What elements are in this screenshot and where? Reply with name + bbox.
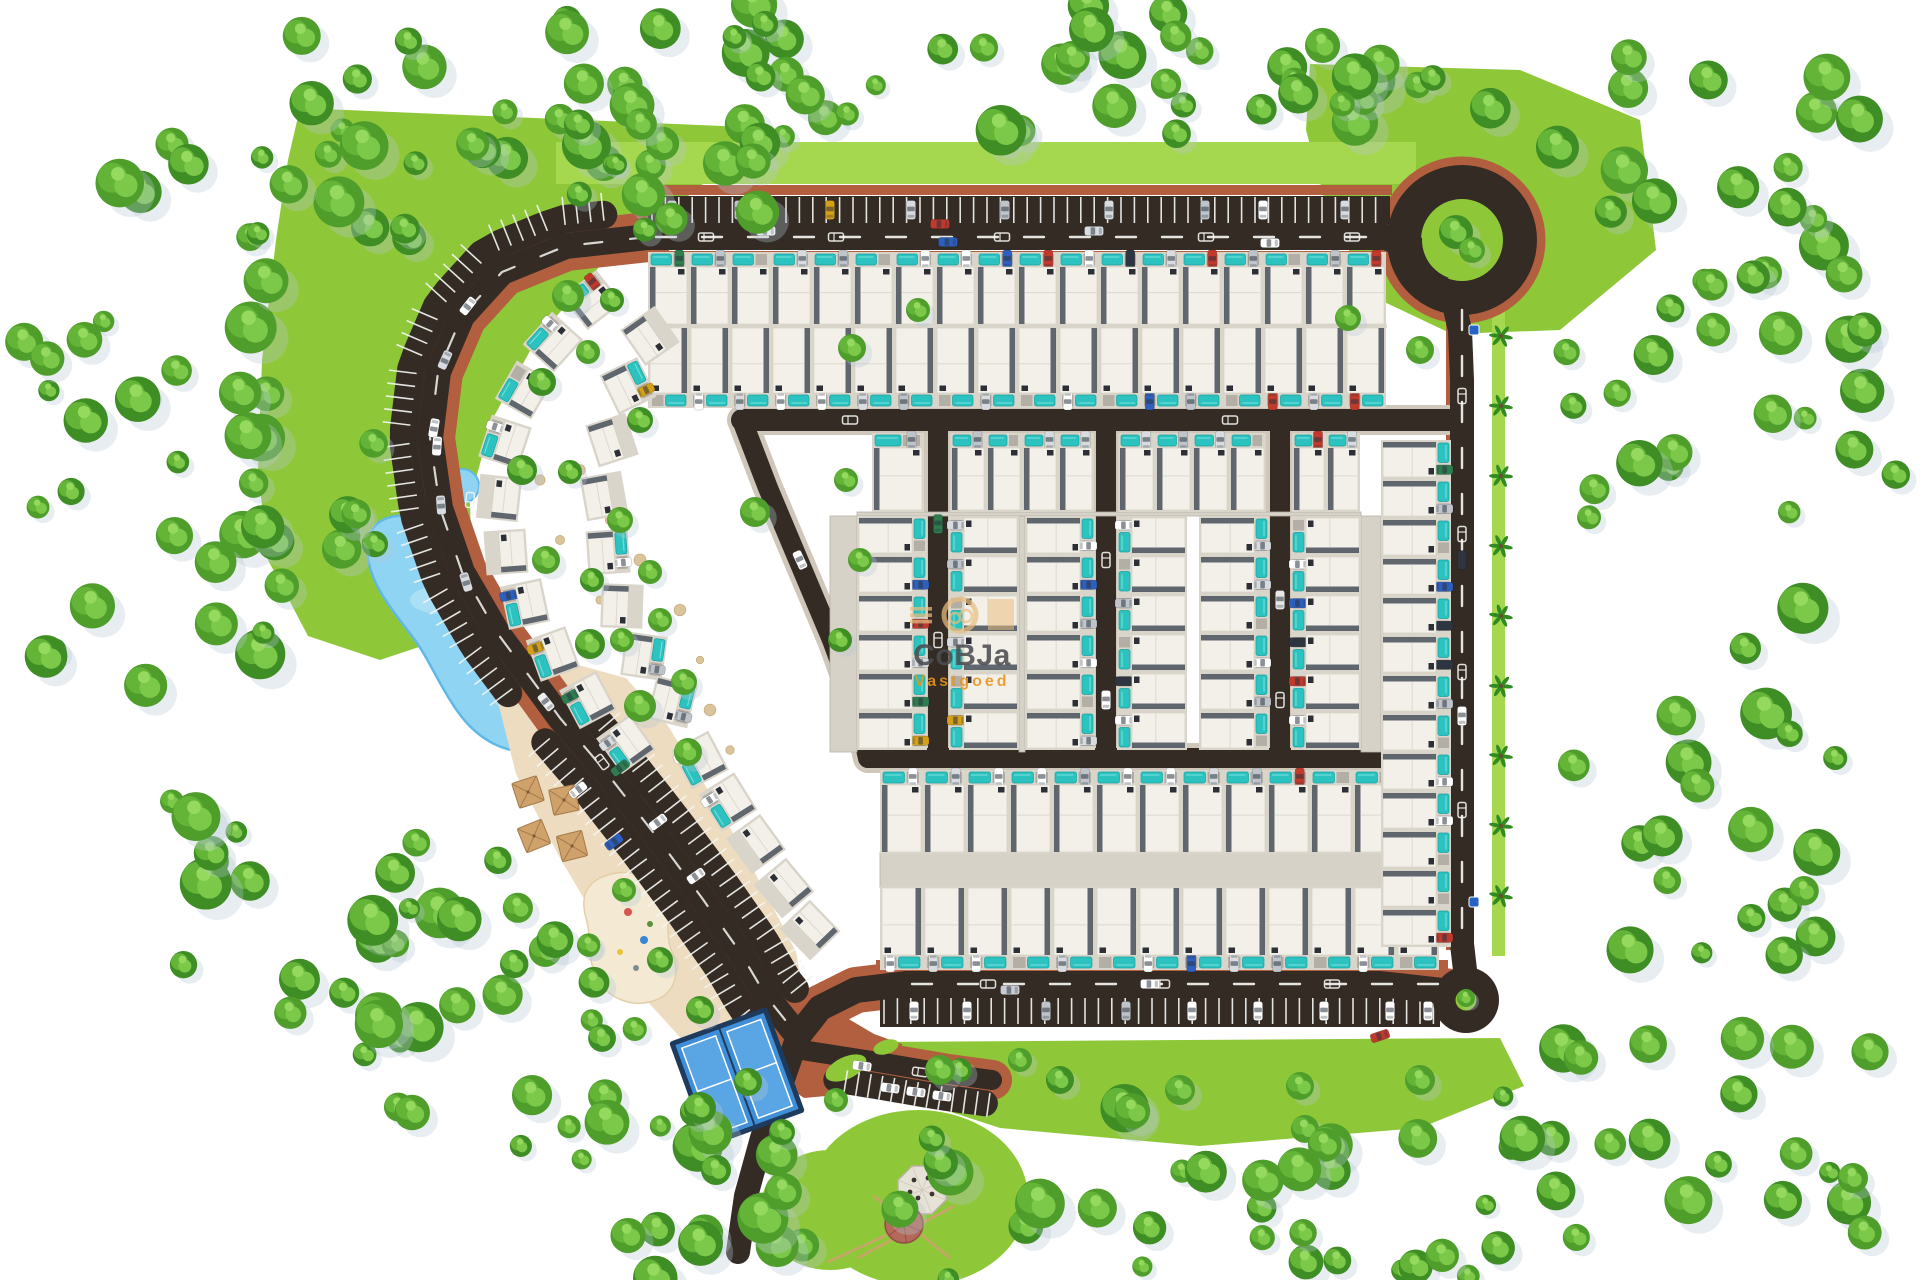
car [1434, 777, 1453, 786]
car [1115, 716, 1134, 725]
car [1457, 707, 1466, 726]
car [1166, 768, 1175, 787]
car [1144, 953, 1153, 972]
house-unit [1025, 516, 1097, 555]
car [1350, 391, 1359, 410]
car [947, 716, 966, 725]
tree [1493, 1086, 1518, 1110]
house-unit [1267, 768, 1310, 854]
house-unit [1181, 886, 1224, 972]
tree [1696, 313, 1737, 353]
tree [512, 1075, 561, 1123]
car [1434, 660, 1453, 669]
car [1200, 201, 1209, 220]
house-unit [935, 326, 976, 408]
tree [1696, 269, 1735, 307]
car [817, 391, 826, 410]
parking-sign [1469, 897, 1479, 907]
tree [1848, 1216, 1889, 1257]
house-unit [1222, 326, 1263, 408]
house-unit [689, 250, 730, 326]
car [1230, 953, 1239, 972]
car [798, 250, 807, 269]
car [1295, 768, 1304, 787]
car [931, 219, 950, 228]
tree [1132, 1256, 1157, 1280]
house-unit [1289, 555, 1361, 594]
car [947, 521, 966, 530]
car [1434, 504, 1453, 513]
house-unit [949, 594, 1019, 633]
car [1347, 431, 1356, 450]
house-unit [1381, 713, 1451, 752]
car [933, 515, 942, 534]
house-unit [857, 594, 929, 633]
tree [1836, 96, 1893, 152]
car [951, 768, 960, 787]
car [972, 953, 981, 972]
house-unit [1291, 516, 1361, 555]
house-unit [976, 250, 1017, 326]
car [947, 638, 966, 647]
house-unit [1117, 633, 1187, 672]
car [1434, 816, 1453, 825]
car [1078, 658, 1097, 667]
house-unit [1381, 908, 1453, 947]
house-unit [1058, 250, 1099, 326]
house-unit [1025, 633, 1097, 672]
house-unit [853, 252, 894, 326]
shrub [674, 604, 686, 616]
car [1104, 201, 1113, 220]
car [1003, 250, 1012, 269]
tree [1656, 294, 1690, 328]
car [1252, 768, 1261, 787]
house-unit [1199, 711, 1269, 750]
car [1252, 697, 1271, 706]
house-unit [1022, 431, 1058, 512]
play-equipment [617, 949, 623, 955]
back-alley [1019, 516, 1025, 752]
car [1001, 985, 1020, 994]
house-unit [1115, 516, 1187, 555]
tree [532, 546, 566, 580]
house-unit [1289, 633, 1361, 672]
car [1289, 677, 1308, 686]
car [899, 391, 908, 410]
car [1080, 768, 1089, 787]
car [1261, 238, 1280, 247]
house-unit [1310, 886, 1353, 970]
house-unit [1345, 326, 1386, 410]
car [675, 250, 684, 269]
house-unit [1381, 518, 1451, 557]
tree [1774, 153, 1810, 188]
car [981, 391, 990, 410]
tree [1289, 1219, 1323, 1252]
tree [395, 27, 428, 60]
tree [545, 10, 599, 63]
house-unit [1138, 768, 1181, 854]
car [1423, 1002, 1432, 1021]
car [839, 250, 848, 269]
car [1115, 521, 1134, 530]
tree [1629, 1119, 1680, 1169]
house-unit [1138, 886, 1181, 972]
car [1078, 580, 1097, 589]
house-unit [1025, 711, 1097, 750]
car [1044, 250, 1053, 269]
house-unit [872, 431, 924, 512]
car [1319, 1002, 1328, 1021]
tree [1481, 1231, 1522, 1271]
house-unit [1181, 250, 1222, 326]
tree [283, 17, 330, 63]
tree [1664, 1176, 1723, 1234]
house-unit [1292, 431, 1326, 512]
car [1186, 391, 1195, 410]
car [1141, 979, 1160, 988]
tree [1778, 501, 1805, 528]
car [886, 953, 895, 972]
house-unit [966, 768, 1009, 854]
tree [343, 64, 379, 99]
masterplan-canvas [0, 0, 1920, 1280]
car [825, 201, 834, 220]
house-unit [812, 250, 853, 326]
tree [576, 340, 605, 369]
car [939, 237, 958, 246]
house-unit [1289, 672, 1361, 711]
car [1115, 599, 1134, 608]
house-unit [949, 672, 1019, 711]
tree [484, 847, 518, 880]
car [910, 619, 929, 628]
house-unit [1115, 672, 1187, 711]
house-unit [1199, 672, 1271, 711]
house-unit [1224, 886, 1267, 972]
tree [58, 478, 91, 511]
tree [95, 159, 154, 217]
tree [1721, 1017, 1774, 1069]
car [1167, 250, 1176, 269]
tree [558, 460, 587, 489]
house-unit [880, 886, 923, 972]
house-unit [1199, 516, 1271, 555]
tree [1737, 904, 1771, 938]
car [910, 736, 929, 745]
car [1275, 591, 1284, 610]
house-unit [1009, 886, 1052, 970]
car [1385, 1002, 1394, 1021]
car [1209, 768, 1218, 787]
house-unit [689, 326, 730, 410]
house-unit [1009, 768, 1052, 854]
car [929, 953, 938, 972]
parasol [556, 830, 588, 862]
car [1078, 619, 1097, 628]
tree [640, 8, 690, 57]
tree [1634, 335, 1683, 383]
car [1434, 582, 1453, 591]
house-unit [1025, 555, 1097, 594]
house-unit [1058, 326, 1099, 410]
car [1145, 391, 1154, 410]
tree [970, 33, 1005, 67]
house-unit [1229, 433, 1266, 512]
tree [503, 893, 540, 929]
house-unit [986, 433, 1022, 512]
house-unit [1140, 250, 1181, 326]
car [735, 391, 744, 410]
car [1126, 250, 1135, 269]
car [909, 1002, 918, 1021]
car [1289, 599, 1308, 608]
house-unit [1155, 431, 1192, 512]
house-unit [730, 252, 771, 326]
car [1289, 716, 1308, 725]
house-unit [1115, 594, 1187, 633]
car [1115, 677, 1134, 686]
tree [623, 1017, 652, 1046]
tree [161, 355, 198, 392]
tree [1537, 1171, 1585, 1218]
tree [1882, 460, 1917, 494]
tree [1826, 256, 1871, 300]
house-unit [1381, 557, 1453, 596]
house-unit [1381, 869, 1451, 908]
house-unit [1099, 326, 1140, 408]
tree [834, 468, 863, 497]
house-unit [857, 672, 929, 711]
car [1081, 431, 1090, 450]
tree [510, 1135, 537, 1162]
house-unit [1118, 431, 1155, 512]
tree [585, 1100, 640, 1154]
tree [588, 1024, 622, 1057]
car [1085, 250, 1094, 269]
house-unit [947, 555, 1019, 594]
house-unit [1181, 326, 1222, 410]
tree [170, 951, 203, 984]
tree [402, 829, 436, 862]
house-unit [1095, 886, 1138, 970]
tree [558, 1115, 586, 1143]
car [906, 201, 915, 220]
tree [1078, 1188, 1126, 1235]
tree [1604, 380, 1637, 413]
house-unit [923, 768, 966, 854]
car [1273, 953, 1282, 972]
house-unit [1310, 770, 1353, 854]
car [910, 697, 929, 706]
car [1252, 541, 1271, 550]
car [921, 250, 930, 269]
tree [1780, 1137, 1820, 1176]
house-unit [730, 326, 771, 410]
house-unit [1017, 326, 1058, 408]
tree [1607, 926, 1665, 982]
tree [1720, 1075, 1766, 1120]
tree [927, 34, 965, 71]
back-alley [857, 512, 1361, 516]
car [1078, 736, 1097, 745]
house-unit [1117, 555, 1187, 594]
tree [633, 1256, 688, 1280]
tree [1691, 942, 1717, 967]
house-unit [1381, 440, 1453, 479]
tree [866, 75, 891, 99]
tree [64, 398, 118, 451]
house-unit [1326, 431, 1360, 512]
car [1268, 391, 1277, 410]
tree [1563, 1224, 1596, 1257]
car [1037, 768, 1046, 787]
house-unit [950, 431, 986, 512]
car [1457, 551, 1466, 570]
tree [1476, 1195, 1501, 1219]
car [1187, 1002, 1196, 1021]
tree [1759, 311, 1812, 363]
tree [1558, 750, 1597, 788]
tree [1851, 1033, 1897, 1078]
tree [1406, 336, 1440, 370]
car [1253, 1002, 1262, 1021]
tree [167, 451, 195, 478]
car [908, 768, 917, 787]
house-unit [1289, 594, 1361, 633]
back-alley [880, 852, 1440, 888]
car [1331, 250, 1340, 269]
tree [1730, 633, 1768, 671]
car [716, 250, 725, 269]
car [1208, 250, 1217, 269]
car [432, 436, 443, 456]
play-equipment [633, 965, 639, 971]
tree [1554, 339, 1586, 370]
tree [1594, 1128, 1633, 1166]
house-unit [1222, 250, 1263, 326]
car [1045, 431, 1054, 450]
house-unit [1381, 791, 1453, 830]
tree [786, 75, 834, 122]
house-unit [1025, 594, 1097, 633]
car [1063, 391, 1072, 410]
tree [25, 635, 77, 686]
house-unit [1381, 596, 1453, 635]
house-unit [857, 711, 929, 750]
tree [1705, 1151, 1738, 1183]
house-unit [1224, 768, 1267, 854]
tree [1398, 1119, 1446, 1166]
car [1434, 621, 1453, 630]
house-unit [1381, 635, 1453, 674]
car [1123, 768, 1132, 787]
car [1289, 560, 1308, 569]
car [1216, 431, 1225, 450]
tree [124, 664, 177, 716]
tree [1717, 166, 1769, 217]
car [1101, 691, 1110, 710]
tree [27, 496, 55, 523]
tree [38, 380, 64, 406]
back-alley [1361, 516, 1381, 752]
tree [1754, 395, 1801, 441]
house-unit [857, 516, 927, 555]
tree [1840, 369, 1894, 422]
house-unit [1381, 752, 1453, 791]
car [612, 557, 632, 568]
house-unit [894, 326, 935, 410]
tree [1250, 1225, 1281, 1255]
car [1000, 201, 1009, 220]
tree [1151, 69, 1188, 105]
tree [168, 144, 218, 193]
car [1434, 465, 1453, 474]
tree [1823, 746, 1853, 775]
car [1372, 250, 1381, 269]
tree [650, 1115, 676, 1140]
car [1121, 1002, 1130, 1021]
car [1252, 658, 1271, 667]
car [1041, 1002, 1050, 1021]
car [1252, 580, 1271, 589]
house-unit [1052, 768, 1095, 854]
tree [638, 560, 667, 589]
tree [115, 376, 171, 431]
house-unit [771, 326, 812, 410]
house-unit [1263, 252, 1304, 326]
tree [1770, 1025, 1824, 1078]
tree [1560, 393, 1592, 424]
car [694, 391, 703, 410]
tree [394, 1095, 438, 1138]
house-unit [1099, 250, 1140, 326]
car [1359, 953, 1368, 972]
tree [1656, 696, 1705, 744]
car [1187, 953, 1196, 972]
play-equipment [647, 921, 653, 927]
tree [1092, 84, 1146, 137]
house-unit [771, 250, 812, 326]
car [1340, 201, 1349, 220]
tree [1629, 1025, 1675, 1070]
car [962, 250, 971, 269]
tree [1764, 1181, 1811, 1227]
tree [172, 792, 232, 851]
tree [572, 1149, 597, 1173]
car [907, 431, 916, 450]
house-unit [1052, 886, 1095, 972]
tree [251, 146, 278, 173]
house-unit [966, 886, 1009, 972]
house-unit [1304, 326, 1345, 410]
car [1179, 431, 1188, 450]
parking-sign [1469, 325, 1479, 335]
car [962, 1002, 971, 1021]
house-unit [935, 250, 976, 326]
tree [195, 602, 248, 654]
house-unit [947, 711, 1019, 750]
car [858, 391, 867, 410]
house-unit [1381, 830, 1451, 869]
car [1313, 431, 1322, 450]
house-unit [880, 768, 923, 854]
shrub [555, 535, 564, 544]
car [994, 768, 1003, 787]
house-unit [857, 633, 929, 672]
tree [1777, 583, 1840, 644]
